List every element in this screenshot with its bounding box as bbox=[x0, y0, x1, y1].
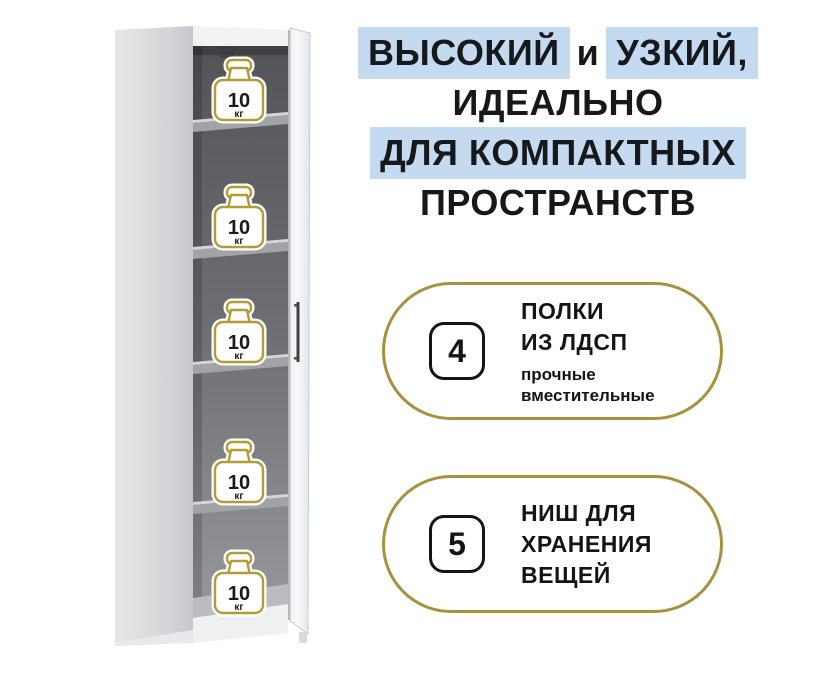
cabinet-side-panel bbox=[115, 26, 193, 643]
headline-line-2: ИДЕАЛЬНО bbox=[337, 78, 779, 128]
feature-text: НИШ ДЛЯ ХРАНЕНИЯ ВЕЩЕЙ bbox=[521, 498, 652, 591]
cabinet-door bbox=[290, 28, 310, 634]
feature-title-line: ПОЛКИ bbox=[521, 296, 655, 327]
headline-line-3: ДЛЯ КОМПАКТНЫХ bbox=[337, 128, 779, 178]
feature-title-line: ХРАНЕНИЯ bbox=[521, 529, 652, 560]
headline-highlight-word: ВЫСОКИЙ bbox=[358, 27, 570, 79]
headline-highlight-word: УЗКИЙ, bbox=[606, 27, 758, 79]
weight-unit: кг bbox=[234, 351, 243, 362]
promo-slide: { "headline": { "line1_part1": "ВЫСОКИЙ"… bbox=[0, 0, 816, 700]
weight-unit: кг bbox=[234, 236, 243, 247]
headline-highlight-word: ДЛЯ КОМПАКТНЫХ bbox=[370, 127, 746, 179]
cabinet-illustration: 10 кг 10 кг 10 кг 10 кг bbox=[105, 20, 315, 660]
feature-count-badge: 5 bbox=[429, 515, 485, 573]
headline-line-1: ВЫСОКИЙ и УЗКИЙ, bbox=[337, 28, 779, 78]
feature-title-line: ВЕЩЕЙ bbox=[521, 560, 652, 591]
weight-unit: кг bbox=[234, 602, 243, 613]
feature-subtitle: прочные вместительные bbox=[521, 364, 655, 406]
headline: ВЫСОКИЙ и УЗКИЙ, ИДЕАЛЬНО ДЛЯ КОМПАКТНЫХ… bbox=[337, 28, 779, 228]
feature-text: ПОЛКИ ИЗ ЛДСП прочные вместительные bbox=[521, 296, 655, 406]
feature-subtitle-line: прочные bbox=[521, 364, 655, 385]
feature-title-line: ИЗ ЛДСП bbox=[521, 327, 655, 358]
weight-unit: кг bbox=[234, 491, 243, 502]
headline-plain-word: и bbox=[577, 28, 600, 78]
door-foot bbox=[299, 632, 307, 643]
headline-line-4: ПРОСТРАНСТВ bbox=[337, 178, 779, 228]
headline-plain-word: ИДЕАЛЬНО bbox=[452, 78, 663, 128]
cabinet-svg: 10 кг 10 кг 10 кг 10 кг bbox=[105, 20, 315, 660]
headline-plain-word: ПРОСТРАНСТВ bbox=[420, 178, 696, 228]
cabinet-top-panel bbox=[193, 26, 290, 46]
feature-card-shelves: 4 ПОЛКИ ИЗ ЛДСП прочные вместительные bbox=[382, 282, 723, 420]
feature-card-niches: 5 НИШ ДЛЯ ХРАНЕНИЯ ВЕЩЕЙ bbox=[382, 475, 723, 613]
interior-top-shadow bbox=[193, 46, 288, 55]
hinge-bracket bbox=[220, 47, 234, 58]
feature-title-line: НИШ ДЛЯ bbox=[521, 498, 652, 529]
weight-unit: кг bbox=[234, 109, 243, 120]
feature-subtitle-line: вместительные bbox=[521, 385, 655, 406]
feature-count-badge: 4 bbox=[429, 322, 485, 380]
